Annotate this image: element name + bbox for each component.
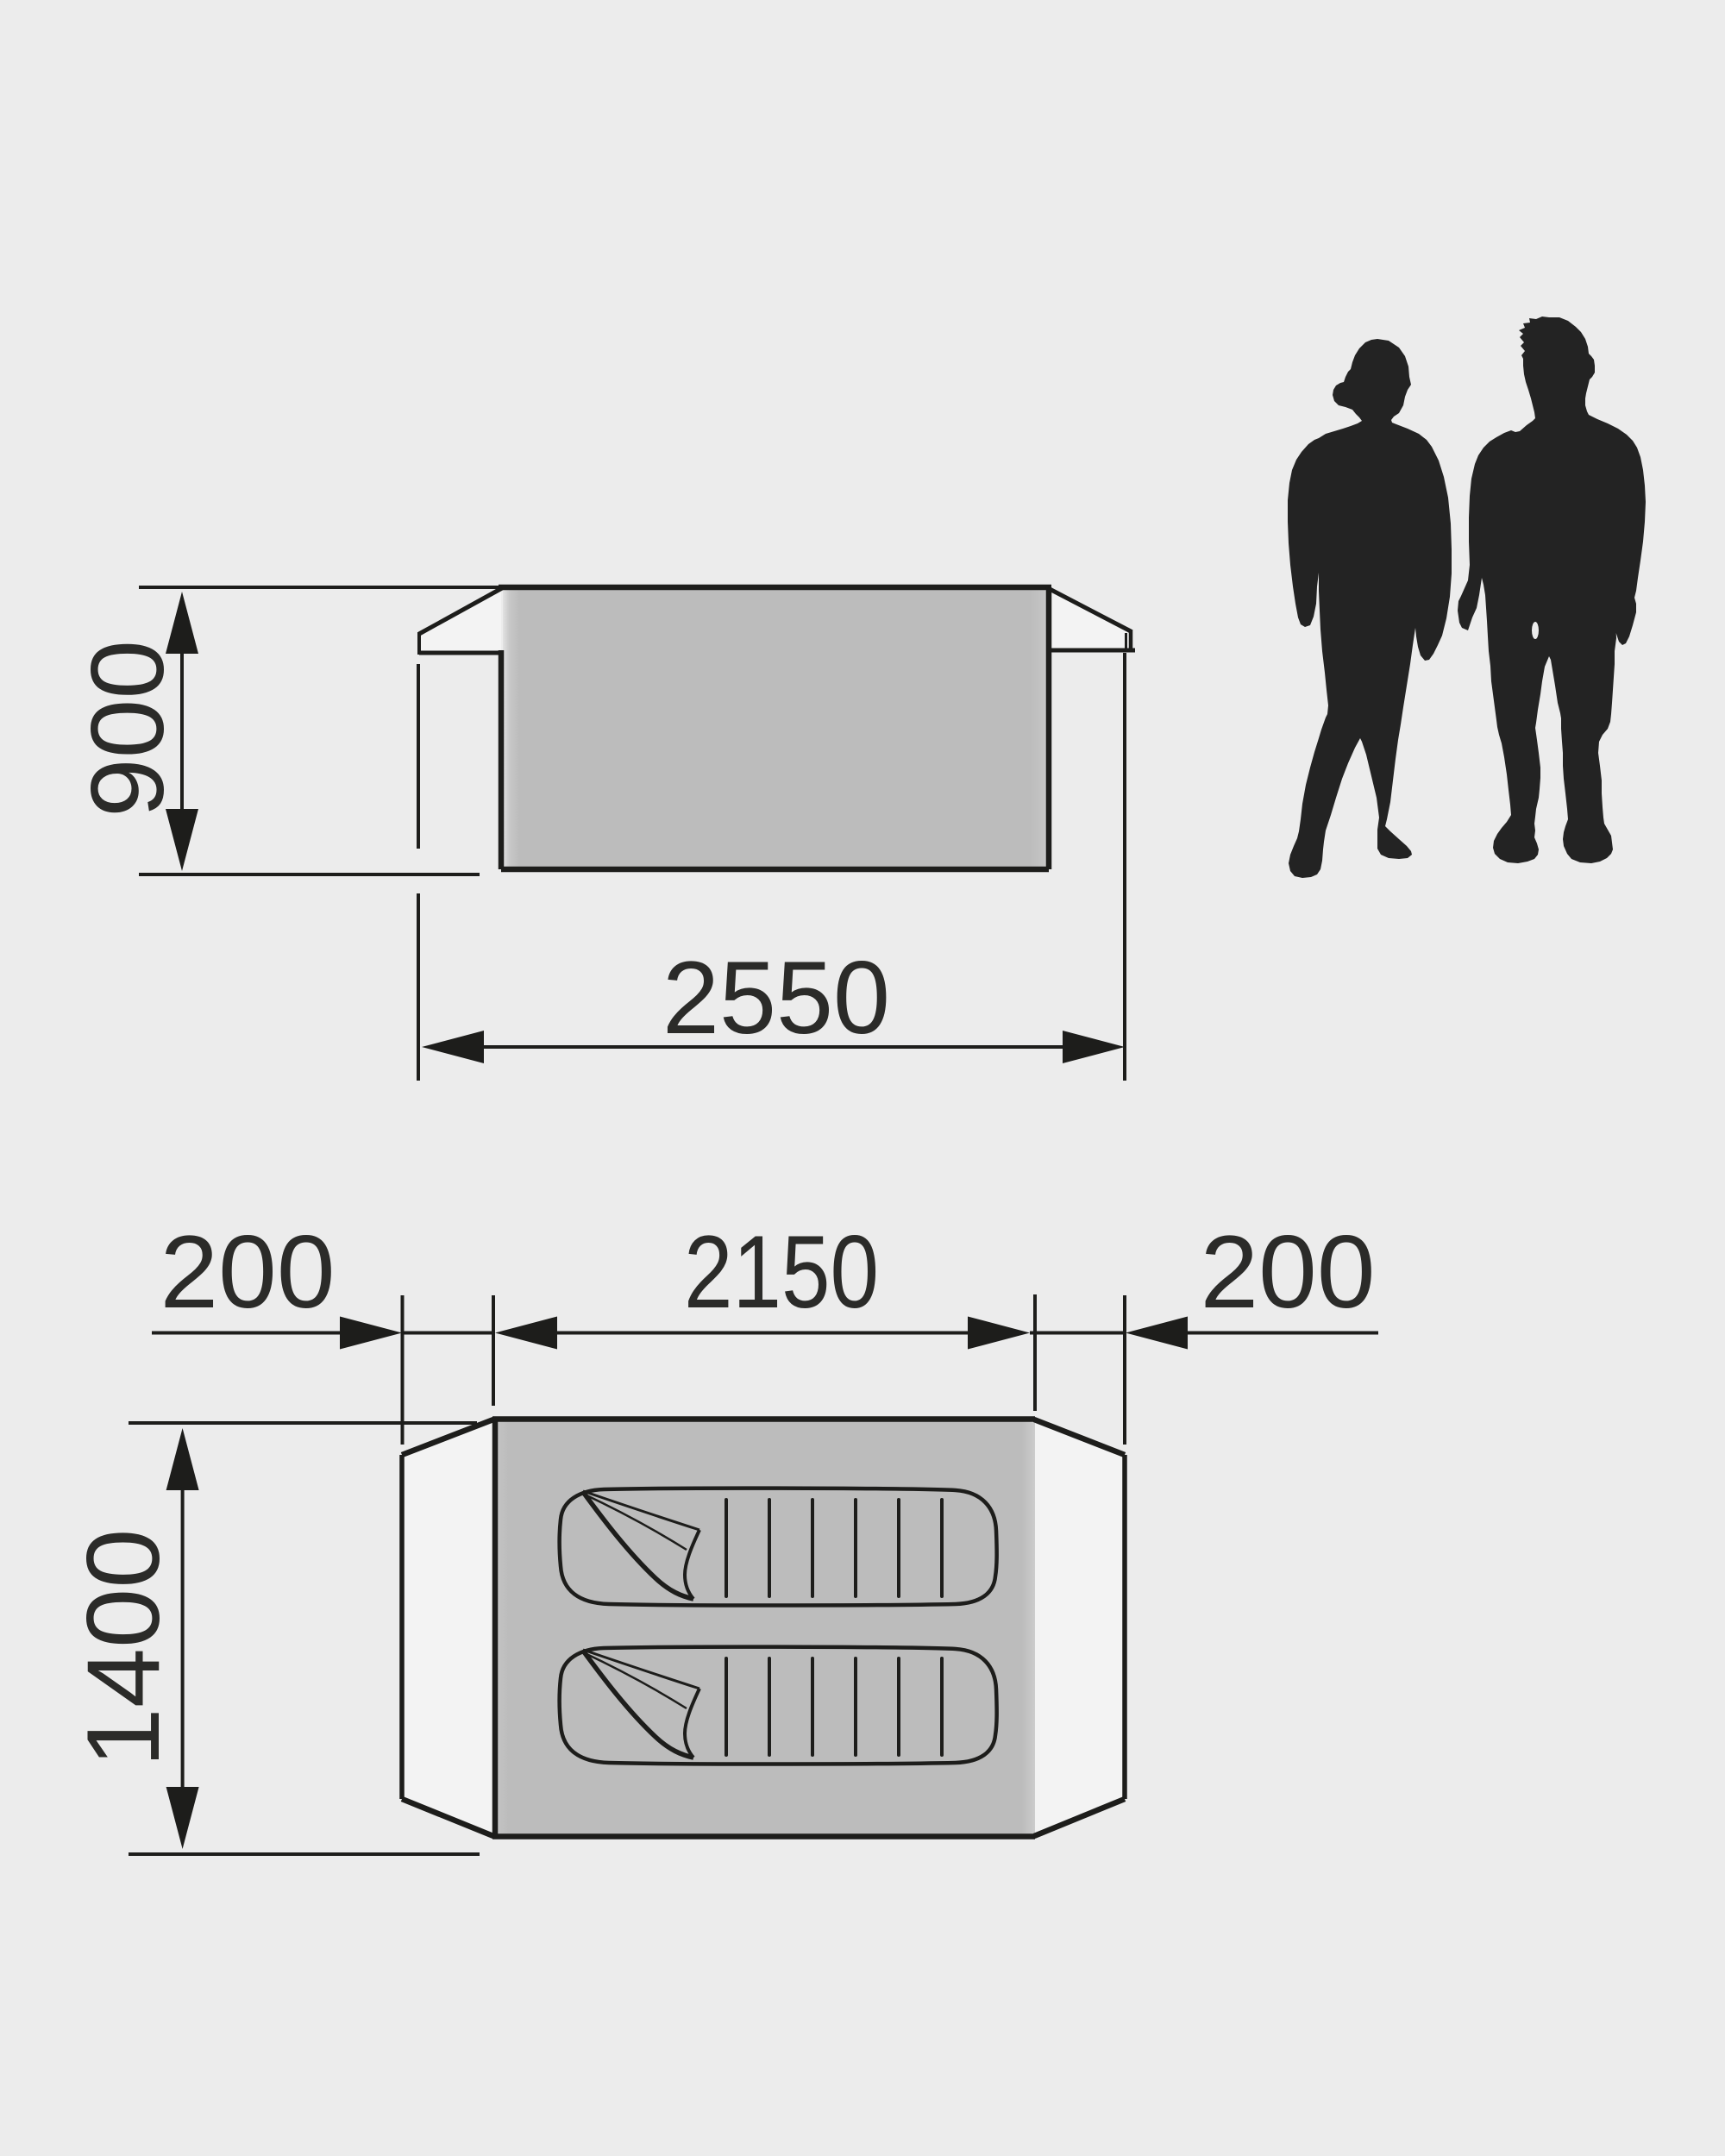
svg-text:200: 200 [1201,1214,1376,1330]
svg-text:200: 200 [160,1214,336,1330]
svg-text:2550: 2550 [662,940,890,1056]
svg-text:1400: 1400 [66,1529,181,1768]
svg-text:900: 900 [70,640,185,818]
svg-text:2150: 2150 [684,1214,879,1330]
